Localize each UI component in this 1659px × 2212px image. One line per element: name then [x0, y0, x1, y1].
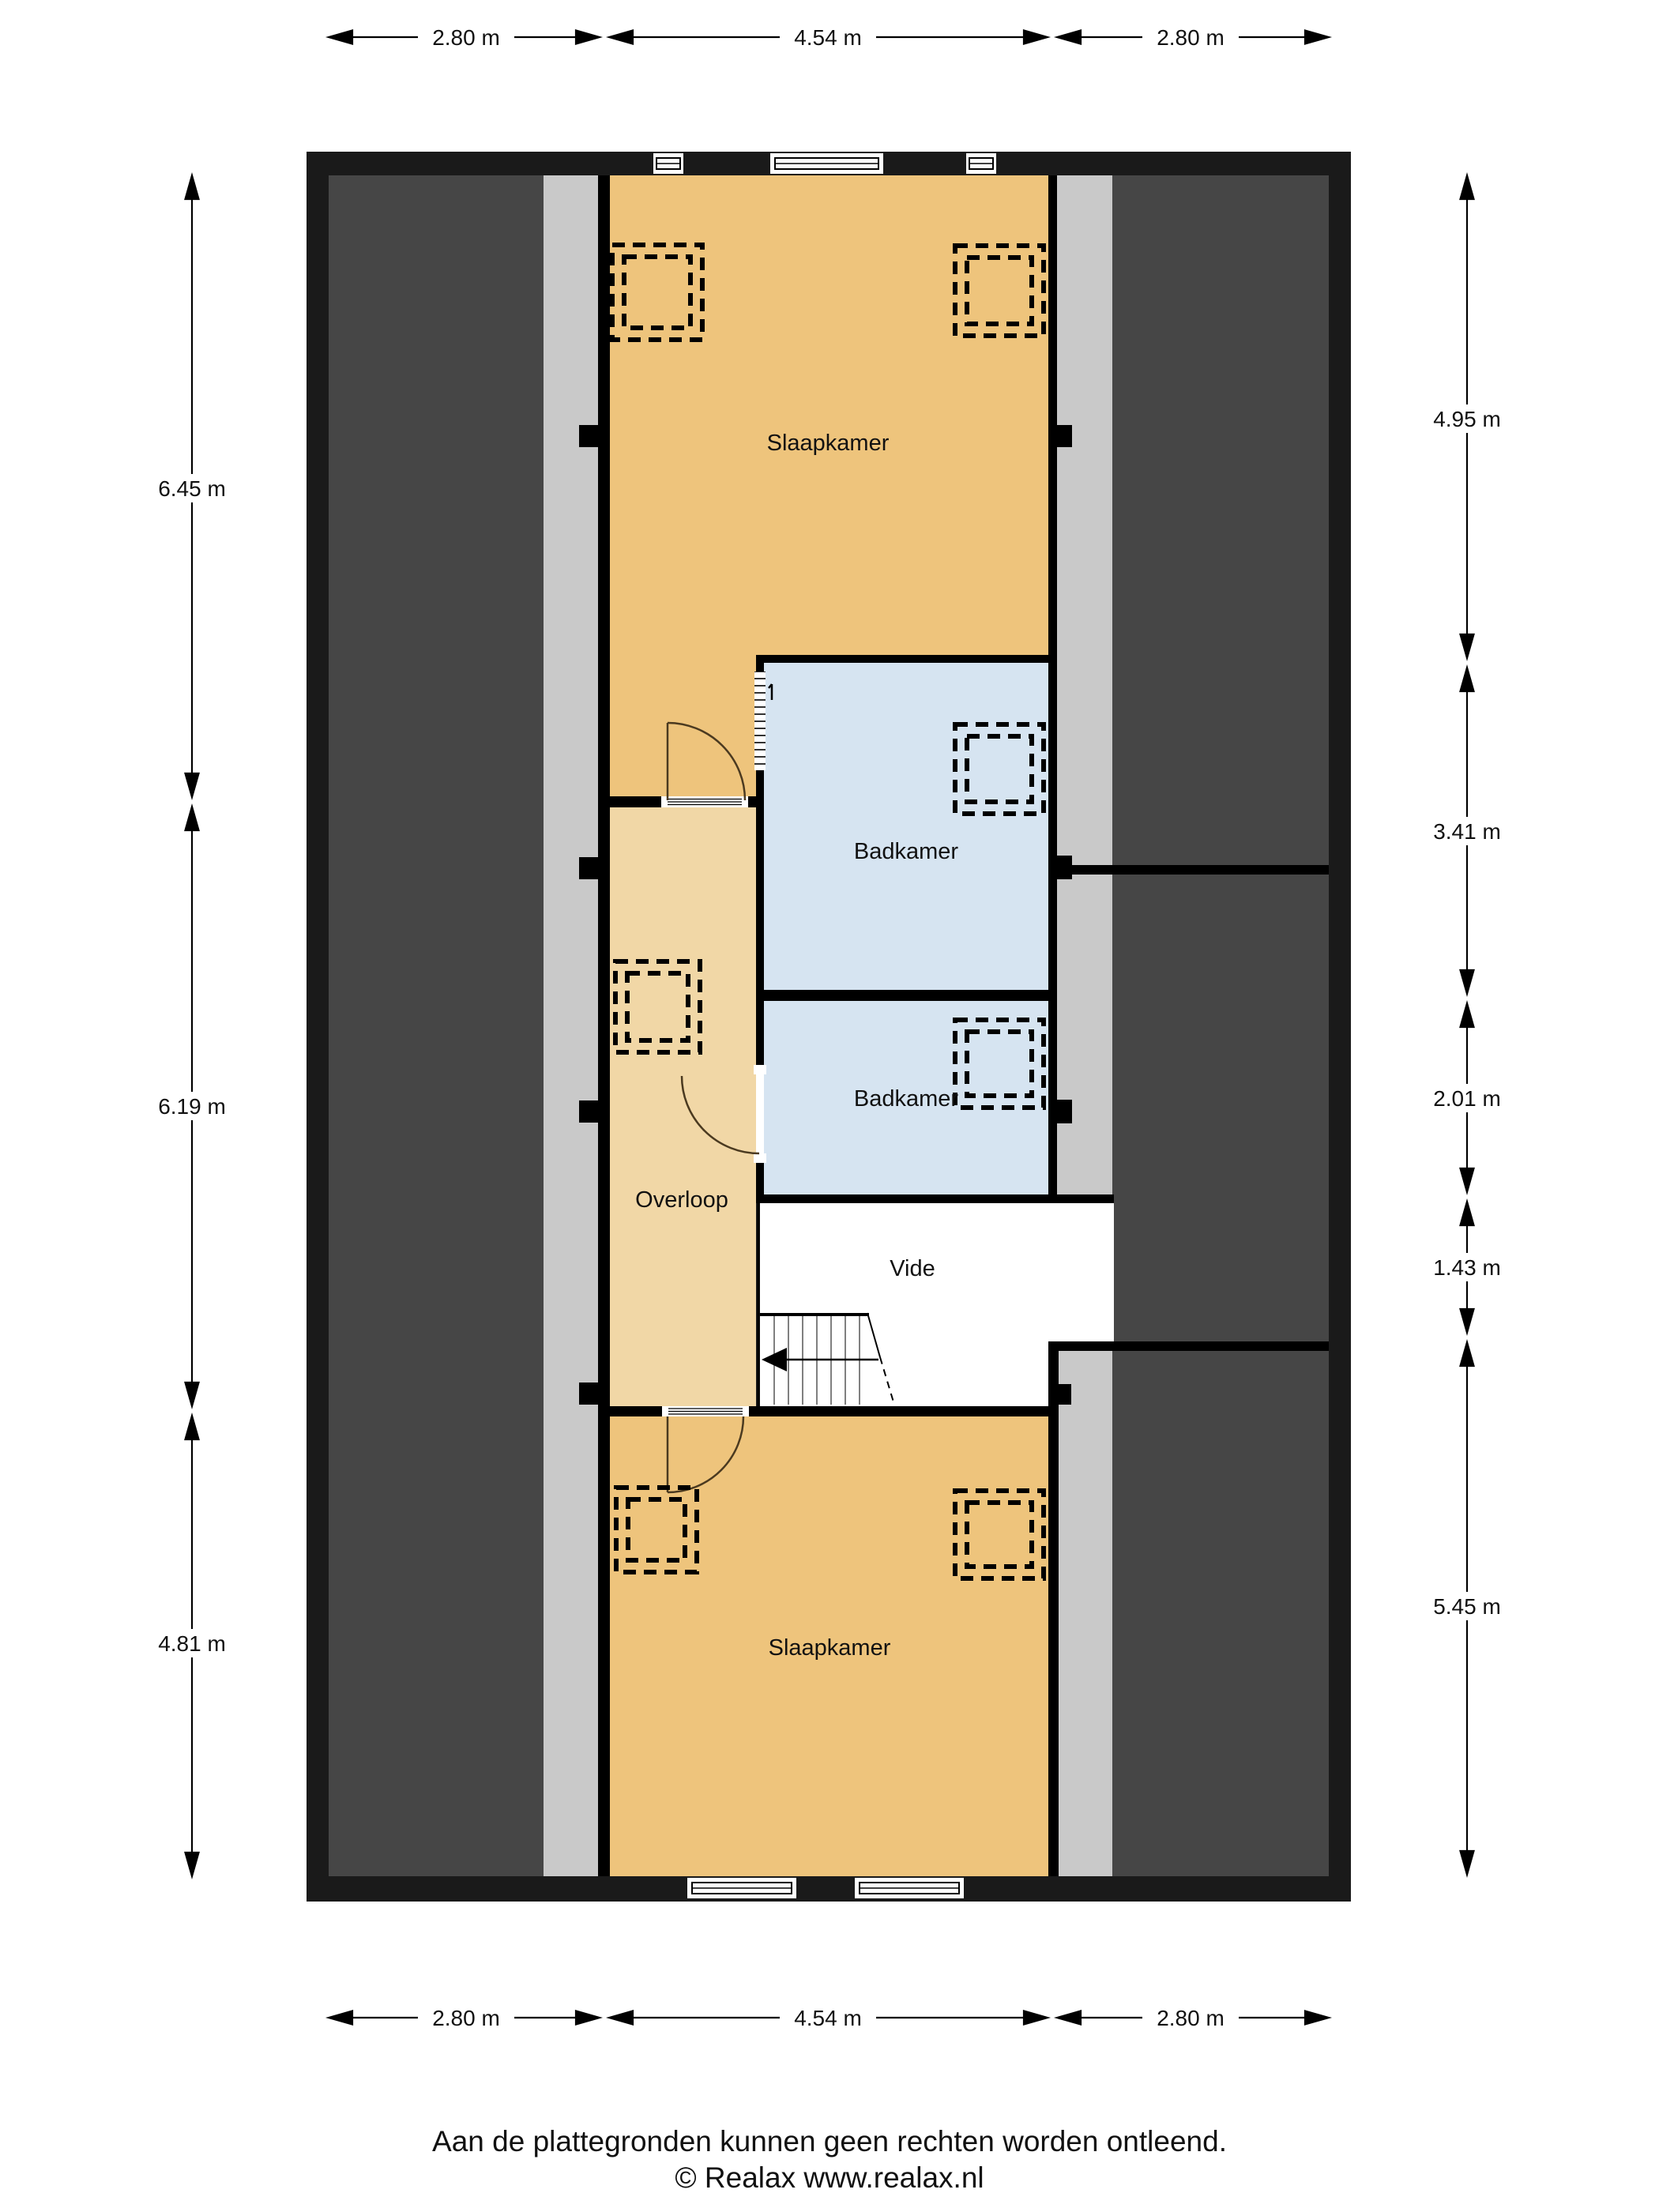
dim-right-4: 1.43 m: [1433, 1255, 1501, 1280]
dim-bottom-2: 4.54 m: [794, 2006, 862, 2030]
label-bathroom-top: Badkamer: [854, 839, 959, 864]
floorplan-page: Slaapkamer Badkamer Badkamer Overloop Vi…: [0, 0, 1659, 2212]
dim-left-1: 6.45 m: [158, 476, 226, 501]
label-bedroom-bottom: Slaapkamer: [769, 1635, 891, 1661]
window-bottom-right: [855, 1878, 964, 1898]
dim-left-3: 4.81 m: [158, 1631, 226, 1656]
floorplan-drawing: Slaapkamer Badkamer Badkamer Overloop Vi…: [0, 0, 1659, 2212]
dim-right-5: 5.45 m: [1433, 1594, 1501, 1619]
dim-left: 6.45 m 6.19 m 4.81 m: [143, 175, 241, 1876]
label-bedroom-top: Slaapkamer: [767, 431, 890, 456]
window-top-small-left: [653, 153, 683, 174]
window-bottom-left: [687, 1878, 796, 1898]
label-void: Vide: [890, 1256, 935, 1281]
dim-right-1: 4.95 m: [1433, 407, 1501, 431]
window-top-small-right: [966, 153, 996, 174]
dim-right-3: 2.01 m: [1433, 1086, 1501, 1111]
dim-top-3: 2.80 m: [1157, 25, 1224, 50]
footer-disclaimer: Aan de plattegronden kunnen geen rechten…: [432, 2125, 1227, 2157]
dim-right-2: 3.41 m: [1433, 819, 1501, 844]
dim-top-2: 4.54 m: [794, 25, 862, 50]
window-top-wide: [770, 153, 883, 174]
dim-top-1: 2.80 m: [432, 25, 500, 50]
dim-right: 4.95 m 3.41 m 2.01 m 1.43 m 5.45 m: [1418, 175, 1516, 1875]
dim-bottom-1: 2.80 m: [432, 2006, 500, 2030]
dim-bottom: 2.80 m 4.54 m 2.80 m: [329, 2003, 1329, 2032]
dim-top: 2.80 m 4.54 m 2.80 m: [329, 23, 1329, 51]
dim-left-2: 6.19 m: [158, 1094, 226, 1119]
label-bathroom-bottom: Badkamer: [854, 1086, 959, 1112]
bathroom-interior-window: [754, 671, 766, 770]
dim-bottom-3: 2.80 m: [1157, 2006, 1224, 2030]
footer: Aan de plattegronden kunnen geen rechten…: [432, 2125, 1227, 2194]
label-landing: Overloop: [635, 1187, 728, 1213]
room-bathroom-top: [764, 663, 1048, 990]
room-landing: [610, 807, 756, 1406]
footer-copyright: © Realax www.realax.nl: [675, 2161, 984, 2194]
